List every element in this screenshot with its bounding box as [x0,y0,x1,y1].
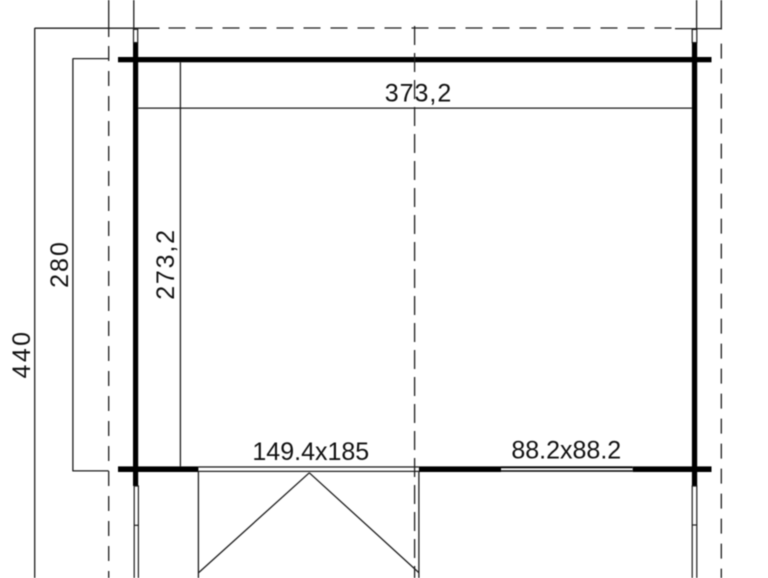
svg-text:373,2: 373,2 [385,80,453,108]
svg-text:440: 440 [8,330,36,379]
svg-text:149.4x185: 149.4x185 [252,438,369,466]
svg-text:273,2: 273,2 [152,228,180,300]
svg-text:88.2x88.2: 88.2x88.2 [511,437,621,465]
svg-text:280: 280 [46,240,74,288]
